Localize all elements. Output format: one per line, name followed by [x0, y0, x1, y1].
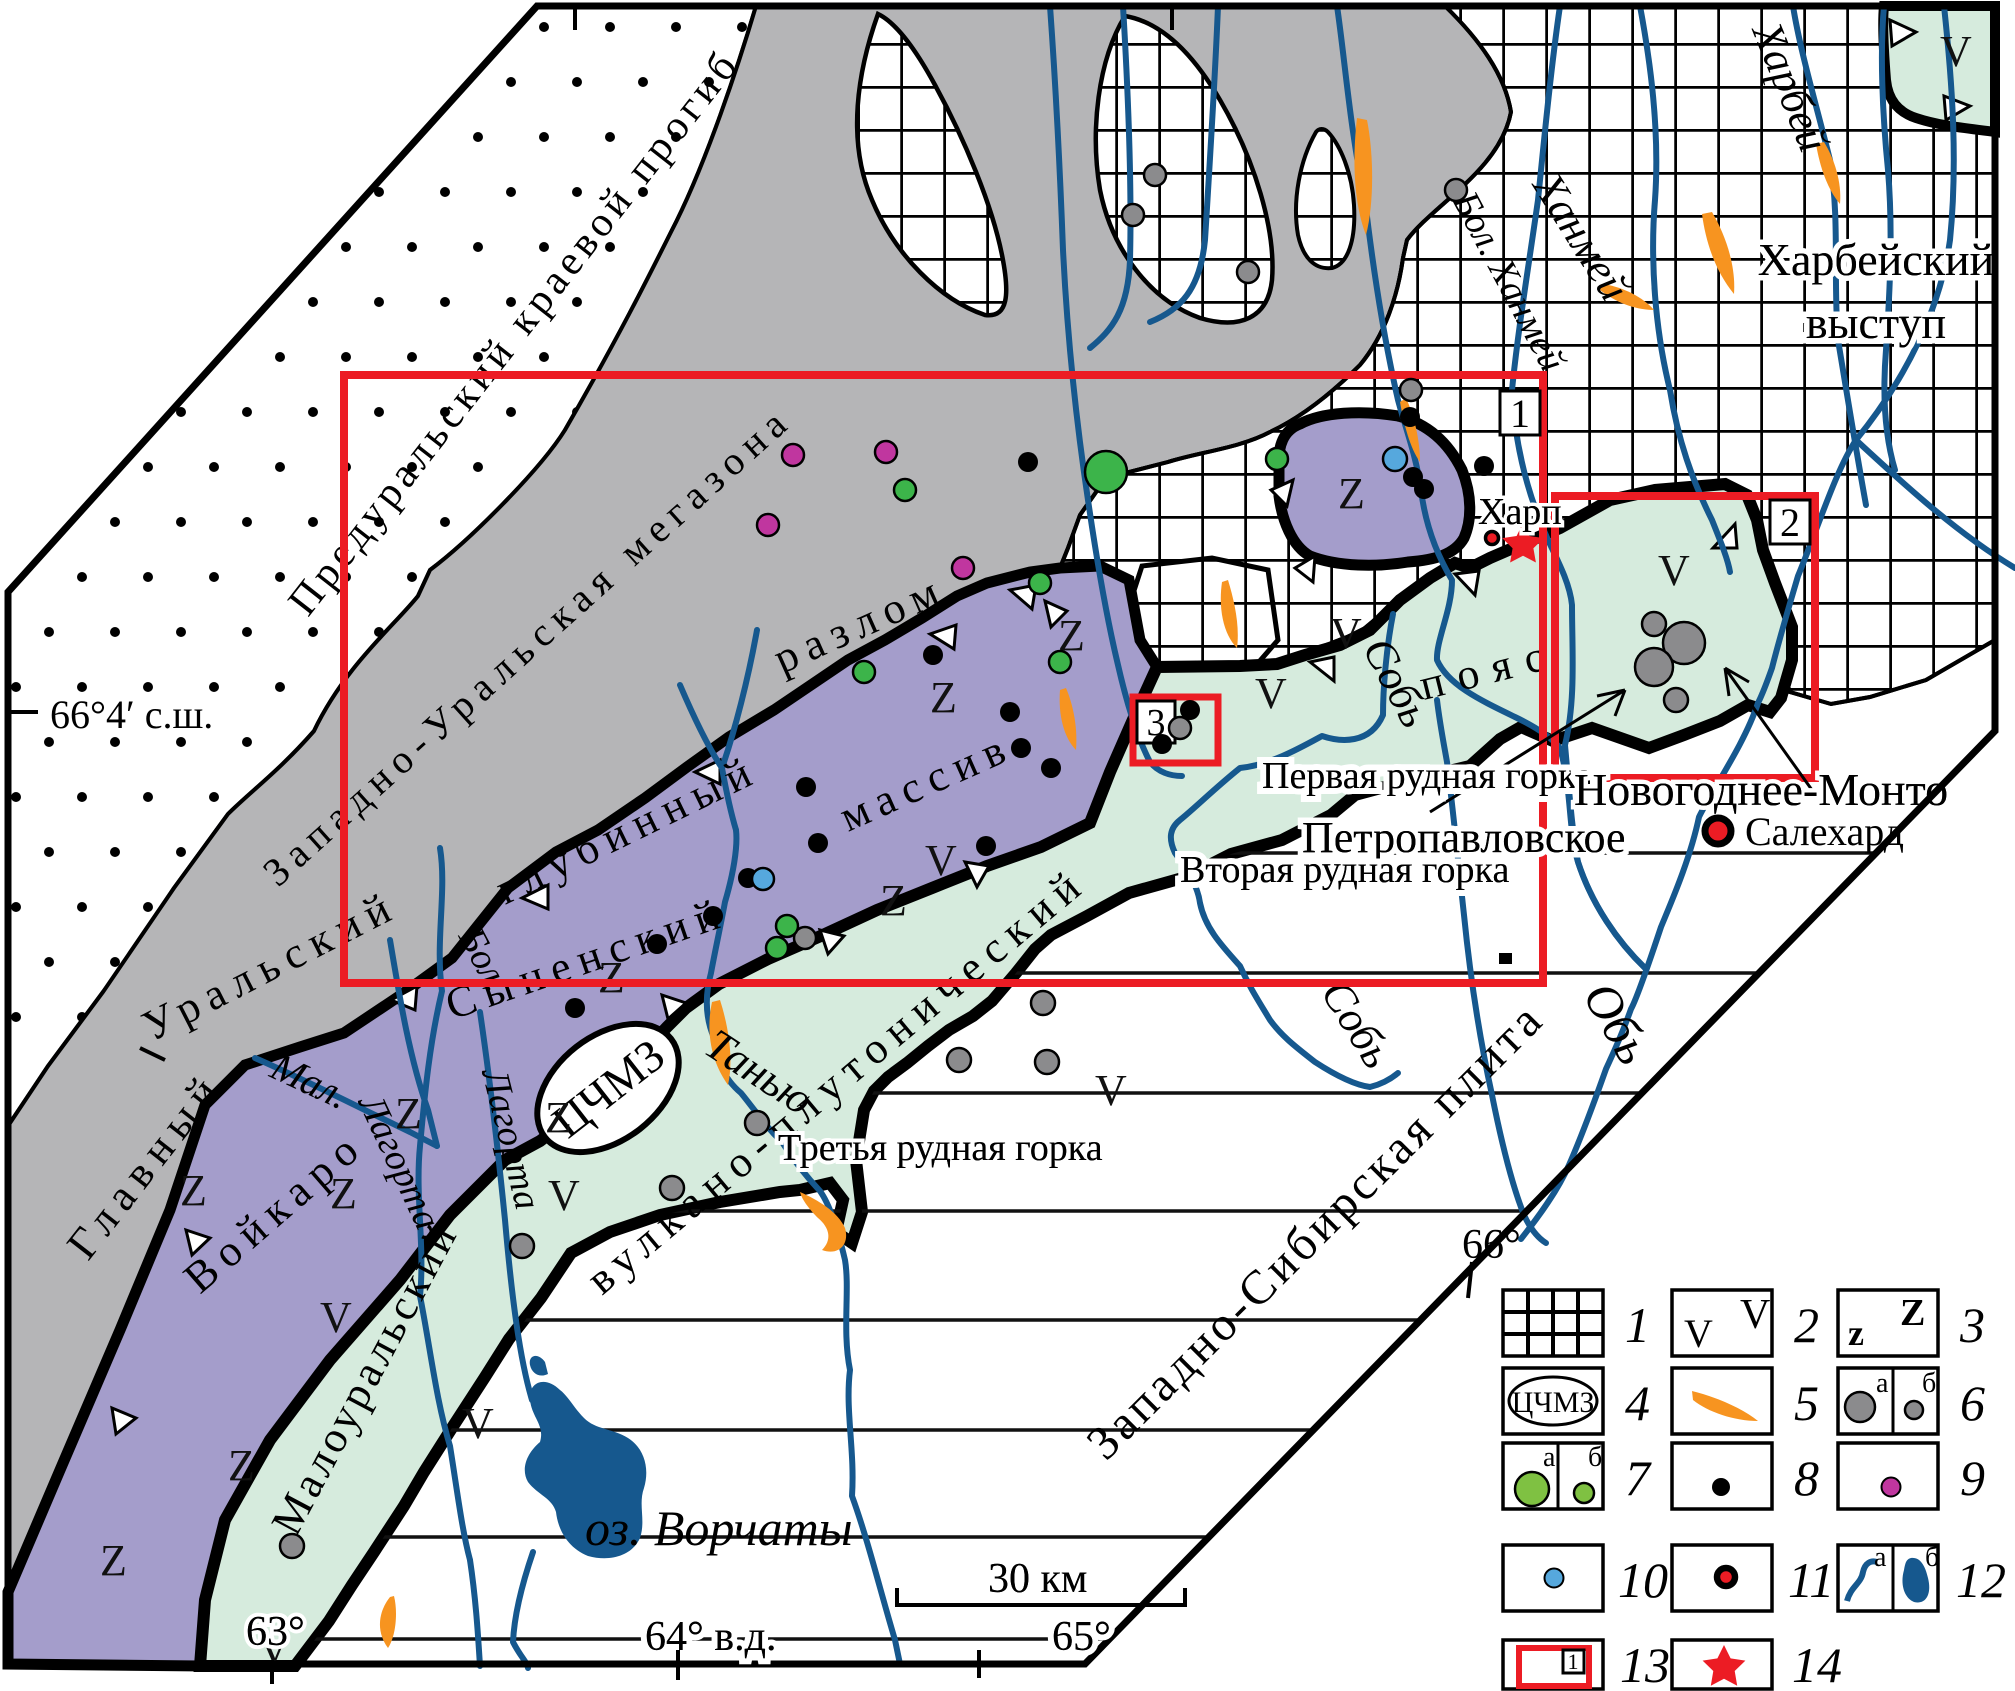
svg-text:14: 14 [1792, 1637, 1842, 1691]
svg-text:а: а [1543, 1442, 1556, 1473]
svg-text:64° в.д.: 64° в.д. [645, 1614, 777, 1660]
svg-text:1: 1 [1510, 391, 1530, 436]
svg-text:1: 1 [1568, 1649, 1579, 1674]
svg-text:1: 1 [1625, 1297, 1650, 1353]
svg-text:13: 13 [1620, 1637, 1670, 1691]
svg-text:Z: Z [545, 1093, 572, 1142]
svg-text:ЦЧМЗ: ЦЧМЗ [1512, 1386, 1595, 1419]
svg-text:V: V [925, 836, 957, 885]
svg-text:V: V [1095, 1066, 1127, 1115]
svg-text:Третья рудная горка: Третья рудная горка [778, 1127, 1103, 1169]
svg-text:Z: Z [880, 876, 907, 925]
svg-text:9: 9 [1960, 1450, 1985, 1506]
svg-text:Вторая рудная горка: Вторая рудная горка [1180, 849, 1509, 891]
svg-text:Z: Z [228, 1441, 255, 1490]
svg-text:63°: 63° [246, 1609, 305, 1655]
svg-text:z: z [1848, 1313, 1864, 1353]
svg-text:б: б [1588, 1442, 1602, 1473]
svg-text:4: 4 [1625, 1375, 1650, 1431]
svg-text:Z: Z [100, 1536, 127, 1585]
svg-text:Харбейский: Харбейский [1758, 234, 1994, 285]
svg-text:выступ: выступ [1806, 297, 1946, 348]
svg-text:65°: 65° [1052, 1614, 1111, 1660]
svg-text:7: 7 [1625, 1450, 1652, 1506]
svg-text:б: б [1925, 1542, 1939, 1573]
svg-text:2: 2 [1794, 1297, 1819, 1353]
svg-text:V: V [1658, 546, 1690, 595]
svg-text:V: V [1940, 27, 1972, 76]
svg-text:Новогоднее-Монто: Новогоднее-Монто [1574, 764, 1948, 815]
svg-text:6: 6 [1960, 1375, 1985, 1431]
svg-text:а: а [1876, 1368, 1889, 1399]
svg-text:V: V [1684, 1311, 1713, 1356]
svg-text:Z: Z [1900, 1292, 1925, 1334]
svg-text:12: 12 [1956, 1552, 2006, 1608]
svg-text:V: V [320, 1293, 352, 1342]
svg-text:2: 2 [1780, 500, 1800, 545]
svg-text:а: а [1874, 1542, 1887, 1573]
svg-text:30 км: 30 км [988, 1556, 1087, 1602]
svg-text:V: V [462, 1399, 494, 1448]
svg-text:66°4′ с.ш.: 66°4′ с.ш. [50, 692, 213, 737]
svg-text:оз. Ворчаты: оз. Ворчаты [585, 1500, 853, 1556]
svg-text:11: 11 [1788, 1552, 1834, 1608]
svg-text:Первая рудная горка: Первая рудная горка [1262, 755, 1593, 797]
svg-text:б: б [1922, 1368, 1936, 1399]
svg-text:8: 8 [1794, 1450, 1819, 1506]
svg-text:V: V [548, 1171, 580, 1220]
svg-text:10: 10 [1618, 1552, 1668, 1608]
svg-text:3: 3 [1959, 1297, 1985, 1353]
svg-text:V: V [1740, 1292, 1770, 1338]
svg-text:Z: Z [1338, 469, 1365, 518]
svg-text:Харп: Харп [1478, 491, 1562, 533]
svg-text:5: 5 [1794, 1375, 1819, 1431]
svg-text:V: V [1255, 669, 1287, 718]
svg-text:Z: Z [180, 1166, 207, 1215]
svg-text:66°: 66° [1462, 1222, 1521, 1268]
svg-text:Z: Z [930, 673, 957, 722]
